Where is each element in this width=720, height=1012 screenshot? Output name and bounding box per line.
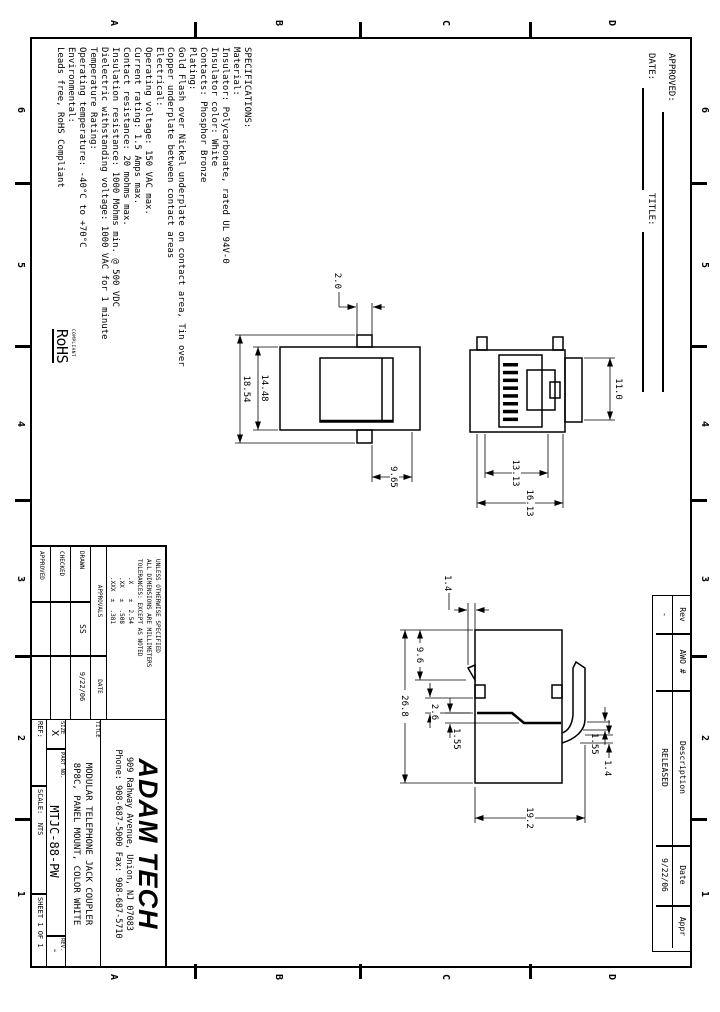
dim-side-gap: 2.6	[429, 704, 439, 720]
zone-col-label: 2	[699, 728, 710, 748]
ref-label: REF:	[36, 721, 44, 738]
zone-col-label: 4	[699, 414, 710, 434]
spec-line: Dielectric withstanding voltage: 1000 VA…	[98, 47, 109, 367]
tolerance-line: .X ± 2.54	[126, 577, 135, 667]
zone-col-label: 3	[699, 569, 710, 589]
approvals-header: APPROVALS	[96, 547, 103, 655]
drawing-title: MODULAR TELEPHONE JACK COUPLER 8P8C, PAN…	[70, 718, 94, 970]
title-block-line	[32, 785, 48, 787]
spec-line: Copper underplate between contact areas	[164, 47, 175, 367]
zone-tick	[692, 818, 707, 821]
title-block-line	[65, 719, 67, 967]
zone-row-label: B	[273, 967, 284, 987]
view-rear: 14.48 18.54 2.0 9.65	[220, 245, 455, 495]
checked-label: CHECKED	[58, 551, 65, 576]
zone-row-label: A	[108, 13, 119, 33]
zone-tick	[194, 964, 197, 979]
scale-label: SCALE: NTS	[36, 789, 44, 835]
zone-tick	[692, 655, 707, 658]
drawing-page: 6 5 4 3 2 1 6 5 4 3 2 1 D C B A D C B A …	[0, 0, 720, 1012]
title-block-line	[90, 547, 92, 719]
date-line	[643, 88, 645, 190]
rev-col-header: Appr	[678, 905, 687, 948]
zone-col-label: 5	[15, 255, 26, 275]
zone-col-label: 2	[15, 728, 26, 748]
date-label: DATE:	[646, 53, 656, 80]
zone-row-label: C	[440, 967, 451, 987]
rev-col-header: Description	[678, 690, 687, 845]
title-line	[643, 232, 645, 392]
company-cell: ADAM TECH 909 Rahway Avenue, Union, NJ 0…	[112, 718, 165, 970]
tolerance-note: UNLESS OTHERWISE SPECIFIED ALL DIMENSION…	[108, 559, 162, 667]
approvals-date-header: DATE	[96, 655, 103, 718]
spec-line: Gold Flash over Nickel underplate on con…	[175, 47, 186, 367]
drawing-sheet: 6 5 4 3 2 1 6 5 4 3 2 1 D C B A D C B A …	[0, 0, 720, 1012]
spec-line: Contacts: Phosphor Bronze	[197, 47, 208, 367]
zone-tick	[692, 499, 707, 502]
zone-col-label: 1	[699, 884, 710, 904]
view-side: 26.8 9.6 2.6 1.55 1.4 1.55	[390, 565, 625, 860]
zone-tick	[359, 22, 362, 37]
zone-col-label: 4	[15, 414, 26, 434]
rohs-logo: COMPLIANT RoHS	[52, 329, 75, 363]
spec-line: Insulation resistance: 1000 Mohms min. @…	[109, 47, 120, 367]
zone-tick	[692, 182, 707, 185]
zone-col-label: 1	[15, 884, 26, 904]
company-phone: Phone: 908-687-5000 Fax: 908-687-5710	[112, 718, 123, 970]
part-no-value: MTJC-88-PW	[47, 748, 61, 935]
size-value: X	[49, 718, 60, 748]
zone-row-label: A	[108, 967, 119, 987]
zone-tick	[15, 499, 30, 502]
rev-date-value: 9/22/06	[660, 845, 669, 905]
company-address: 909 Rahway Avenue, Union, NJ 07083	[123, 718, 134, 970]
tolerance-line: ALL DIMENSIONS ARE MILLIMETERS	[144, 559, 153, 667]
zone-tick	[15, 345, 30, 348]
dim-rear-body-width: 14.48	[259, 374, 269, 401]
zone-tick	[359, 964, 362, 979]
zone-row-label: B	[273, 13, 284, 33]
approved-line	[663, 112, 665, 392]
rohs-text: RoHS	[54, 329, 69, 363]
drawn-by: SS	[78, 603, 87, 655]
zone-row-label: D	[606, 967, 617, 987]
rev-col-header: AWO #	[678, 633, 687, 690]
title-block-line	[70, 547, 72, 719]
tolerance-line: .XXX ± .381	[108, 577, 117, 667]
title-block-line	[100, 719, 102, 967]
zone-col-label: 3	[15, 569, 26, 589]
dim-rear-total-width: 18.54	[241, 375, 251, 402]
approved-label: APPROVED:	[666, 53, 676, 102]
tolerance-line: .XX ± .508	[117, 577, 126, 667]
approved-row-label: APPROVED	[38, 551, 45, 580]
rev-value: -	[660, 596, 669, 633]
description-value: RELEASED	[660, 690, 669, 845]
zone-col-label: 5	[699, 255, 710, 275]
rev-table: Rev AWO # Description Date Appr - RELEAS…	[652, 595, 692, 952]
zone-tick	[15, 655, 30, 658]
zone-tick	[529, 964, 532, 979]
zone-tick	[15, 818, 30, 821]
dim-side-width: 26.8	[399, 695, 409, 717]
dim-side-height: 19.2	[524, 807, 534, 829]
zone-tick	[529, 22, 532, 37]
spec-line: Contact resistance: 20 mohms max.	[120, 47, 131, 367]
zone-tick	[15, 182, 30, 185]
zone-tick	[194, 22, 197, 37]
tolerance-line: TOLERANCES: EXCEPT AS NOTED	[135, 559, 144, 667]
titleblock-title-label: TITLE	[94, 721, 100, 738]
drawing-title-line1: MODULAR TELEPHONE JACK COUPLER	[82, 718, 94, 970]
drawing-title-line2: 8P8C, PANEL MOUNT, COLOR WHITE	[70, 718, 82, 970]
spec-line: Operating temperature: -40°C to +70°C	[76, 47, 87, 367]
rev-cell-value: -	[49, 935, 60, 966]
dim-side-tip: 1.55	[589, 733, 599, 755]
tolerance-line: UNLESS OTHERWISE SPECIFIED	[153, 559, 162, 667]
dim-side-arm: 1.4	[602, 760, 612, 776]
sheet-label: SHEET 1 OF 1	[36, 897, 44, 948]
title-block-line	[50, 547, 52, 719]
company-logo: ADAM TECH	[134, 718, 162, 970]
zone-col-label: 6	[699, 100, 710, 120]
dim-side-step: 1.55	[451, 728, 461, 750]
spec-line: Environmental:	[65, 47, 76, 367]
rev-table-line	[672, 596, 674, 948]
view-front: 11.0 13.13 16.13	[460, 325, 630, 535]
zone-row-label: D	[606, 13, 617, 33]
zone-tick	[692, 345, 707, 348]
rev-col-header: Date	[678, 845, 687, 905]
spec-line: Temperature Rating:	[87, 47, 98, 367]
title-block-line	[32, 893, 48, 895]
dim-rear-side: 9.65	[388, 466, 398, 488]
spec-line: Electrical:	[153, 47, 164, 367]
dim-side-hook: 1.4	[442, 575, 452, 591]
dim-front-top-width: 11.0	[613, 378, 623, 400]
dim-front-outer-height: 16.13	[524, 489, 534, 516]
dim-side-edge-hook: 9.6	[414, 647, 424, 663]
zone-row-label: C	[440, 13, 451, 33]
drawn-date: 9/22/06	[78, 655, 86, 718]
spec-line: Leads free, RoHS Compliant	[54, 47, 65, 367]
dim-rear-tab: 2.0	[332, 273, 342, 289]
spec-line: Insulator color: White	[208, 47, 219, 367]
title-label: TITLE:	[646, 193, 656, 226]
rev-col-header: Rev	[678, 596, 687, 633]
title-block: UNLESS OTHERWISE SPECIFIED ALL DIMENSION…	[30, 545, 167, 968]
dim-front-inner-height: 13.13	[510, 459, 520, 486]
spec-line: Plating:	[186, 47, 197, 367]
drawn-label: DRAWN	[78, 551, 85, 569]
spec-line: Operating voltage: 150 VAC max.	[142, 47, 153, 367]
spec-line: Current rating: 1.5 Amps max.	[131, 47, 142, 367]
zone-col-label: 6	[15, 100, 26, 120]
